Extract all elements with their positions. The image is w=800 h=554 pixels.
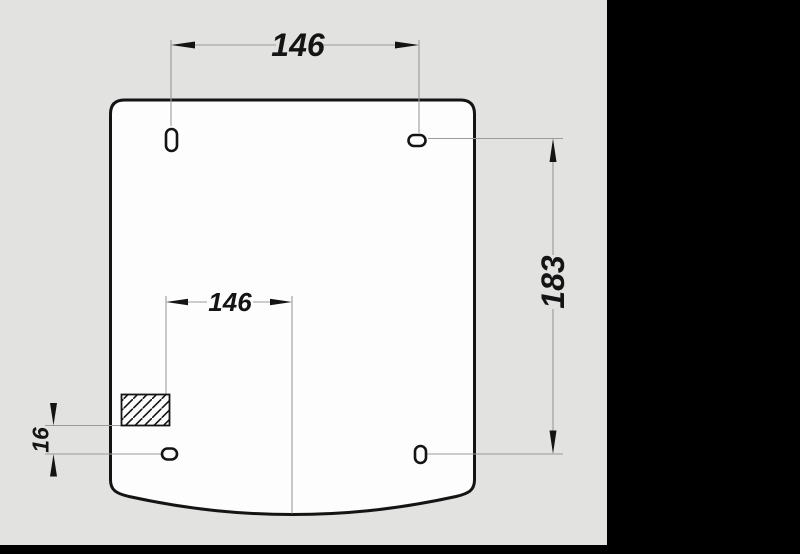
slot-top-right xyxy=(409,135,426,146)
drawing-viewport: 146 146 183 16 xyxy=(0,0,800,554)
dim-label-inner-width: 146 xyxy=(208,287,252,317)
dim-label-right-height: 183 xyxy=(535,255,571,309)
slot-top-left xyxy=(166,129,177,151)
technical-drawing: 146 146 183 16 xyxy=(0,0,800,554)
hatched-area xyxy=(122,395,170,426)
slot-bottom-right xyxy=(415,446,426,463)
slot-bottom-left xyxy=(162,449,177,460)
dim-label-left-offset: 16 xyxy=(28,427,54,453)
dim-label-top-width: 146 xyxy=(271,27,325,63)
